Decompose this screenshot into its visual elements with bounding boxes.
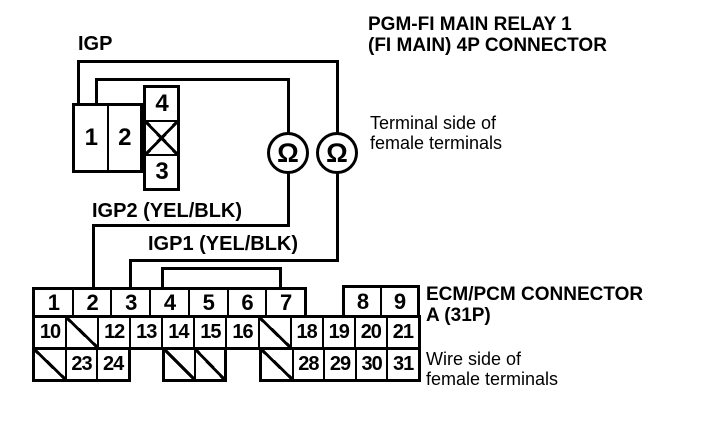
terminal-cell-blocked — [146, 120, 177, 154]
terminal-cell-14: 14 — [161, 318, 193, 347]
ecm-heading-line1: ECM/PCM CONNECTOR — [426, 284, 643, 305]
relay-note-line2: female terminals — [370, 133, 502, 153]
wire-igp1-to-pin3 — [129, 259, 132, 288]
wire-igp2-horizontal — [92, 224, 290, 227]
terminal-cell-29: 29 — [323, 350, 355, 379]
terminal-cell-7: 7 — [265, 290, 304, 315]
terminal-cell-empty — [35, 350, 65, 379]
wire-label-igp1: IGP1 (YEL/BLK) — [148, 233, 298, 256]
terminal-cell-4: 4 — [149, 290, 188, 315]
terminal-cell-28: 28 — [292, 350, 324, 379]
terminal-cell-31: 31 — [386, 350, 418, 379]
ecm-row3-mid-group — [162, 347, 227, 382]
wire-relay2-vertical-left — [95, 78, 98, 105]
ohmmeter-1: Ω — [267, 132, 309, 174]
wire-relay2-vertical-right — [287, 78, 290, 135]
terminal-cell-3: 3 — [110, 290, 149, 315]
terminal-cell-16: 16 — [225, 318, 257, 347]
relay-note: Terminal side of female terminals — [370, 113, 502, 153]
ecm-row2-group: 10121314151618192021 — [32, 315, 421, 350]
ecm-heading: ECM/PCM CONNECTOR A (31P) — [426, 284, 643, 326]
wire-igp-vertical-left — [77, 60, 80, 105]
ecm-note-line1: Wire side of — [426, 349, 558, 369]
terminal-cell-5: 5 — [188, 290, 227, 315]
ecm-row1-left-group: 1234567 — [32, 287, 307, 318]
terminal-cell-30: 30 — [355, 350, 387, 379]
terminal-cell-2: 2 — [107, 106, 141, 170]
terminal-cell-24: 24 — [96, 350, 128, 379]
terminal-cell-9: 9 — [380, 288, 417, 315]
terminal-cell-empty — [65, 318, 97, 347]
terminal-cell-empty — [262, 350, 292, 379]
ecm-note-line2: female terminals — [426, 369, 558, 389]
terminal-cell-19: 19 — [322, 318, 354, 347]
ecm-row1-right-group: 89 — [342, 285, 420, 318]
terminal-cell-10: 10 — [35, 318, 65, 347]
terminal-cell-18: 18 — [290, 318, 322, 347]
terminal-cell-empty — [194, 350, 225, 379]
terminal-cell-13: 13 — [129, 318, 161, 347]
terminal-cell-1: 1 — [35, 290, 72, 315]
ecm-heading-line2: A (31P) — [426, 305, 643, 326]
terminal-cell-20: 20 — [354, 318, 386, 347]
ohmmeter-2: Ω — [316, 132, 358, 174]
terminal-cell-15: 15 — [193, 318, 225, 347]
ohm-symbol: Ω — [277, 138, 299, 169]
terminal-cell-21: 21 — [386, 318, 418, 347]
wire-igp1-horizontal — [129, 259, 339, 262]
ecm-note: Wire side of female terminals — [426, 349, 558, 389]
wire-igp2-to-pin2 — [92, 224, 95, 288]
terminal-cell-1: 1 — [75, 106, 107, 170]
wire-label-igp: IGP — [78, 33, 112, 56]
wire-ohm2-down — [336, 171, 339, 262]
terminal-cell-23: 23 — [65, 350, 97, 379]
ecm-row3-left-group: 2324 — [32, 347, 131, 382]
terminal-cell-2: 2 — [72, 290, 111, 315]
wire-relay2-horizontal — [95, 78, 290, 81]
wire-label-igp2: IGP2 (YEL/BLK) — [92, 200, 242, 223]
terminal-cell-3: 3 — [146, 154, 177, 188]
terminal-cell-empty — [258, 318, 290, 347]
relay-heading-line2: (FI MAIN) 4P CONNECTOR — [368, 35, 607, 56]
terminal-cell-4: 4 — [146, 88, 177, 120]
relay-note-line1: Terminal side of — [370, 113, 502, 133]
relay-heading: PGM-FI MAIN RELAY 1 (FI MAIN) 4P CONNECT… — [368, 14, 607, 56]
ecm-connector-key-tab — [161, 267, 282, 288]
wire-igp-vertical-right — [336, 60, 339, 135]
terminal-cell-12: 12 — [97, 318, 129, 347]
terminal-cell-6: 6 — [227, 290, 266, 315]
terminal-cell-empty — [165, 350, 194, 379]
wire-igp-horizontal — [77, 60, 339, 63]
wire-ohm1-down — [287, 171, 290, 227]
relay-heading-line1: PGM-FI MAIN RELAY 1 — [368, 14, 607, 35]
wiring-diagram: IGP IGP2 (YEL/BLK) IGP1 (YEL/BLK) 12 43 … — [0, 0, 704, 438]
terminal-cell-8: 8 — [345, 288, 380, 315]
ecm-row3-right-group: 28293031 — [259, 347, 421, 382]
relay-connector-right-column: 43 — [143, 85, 180, 191]
relay-connector-left-block: 12 — [72, 103, 143, 173]
ohm-symbol: Ω — [326, 138, 348, 169]
